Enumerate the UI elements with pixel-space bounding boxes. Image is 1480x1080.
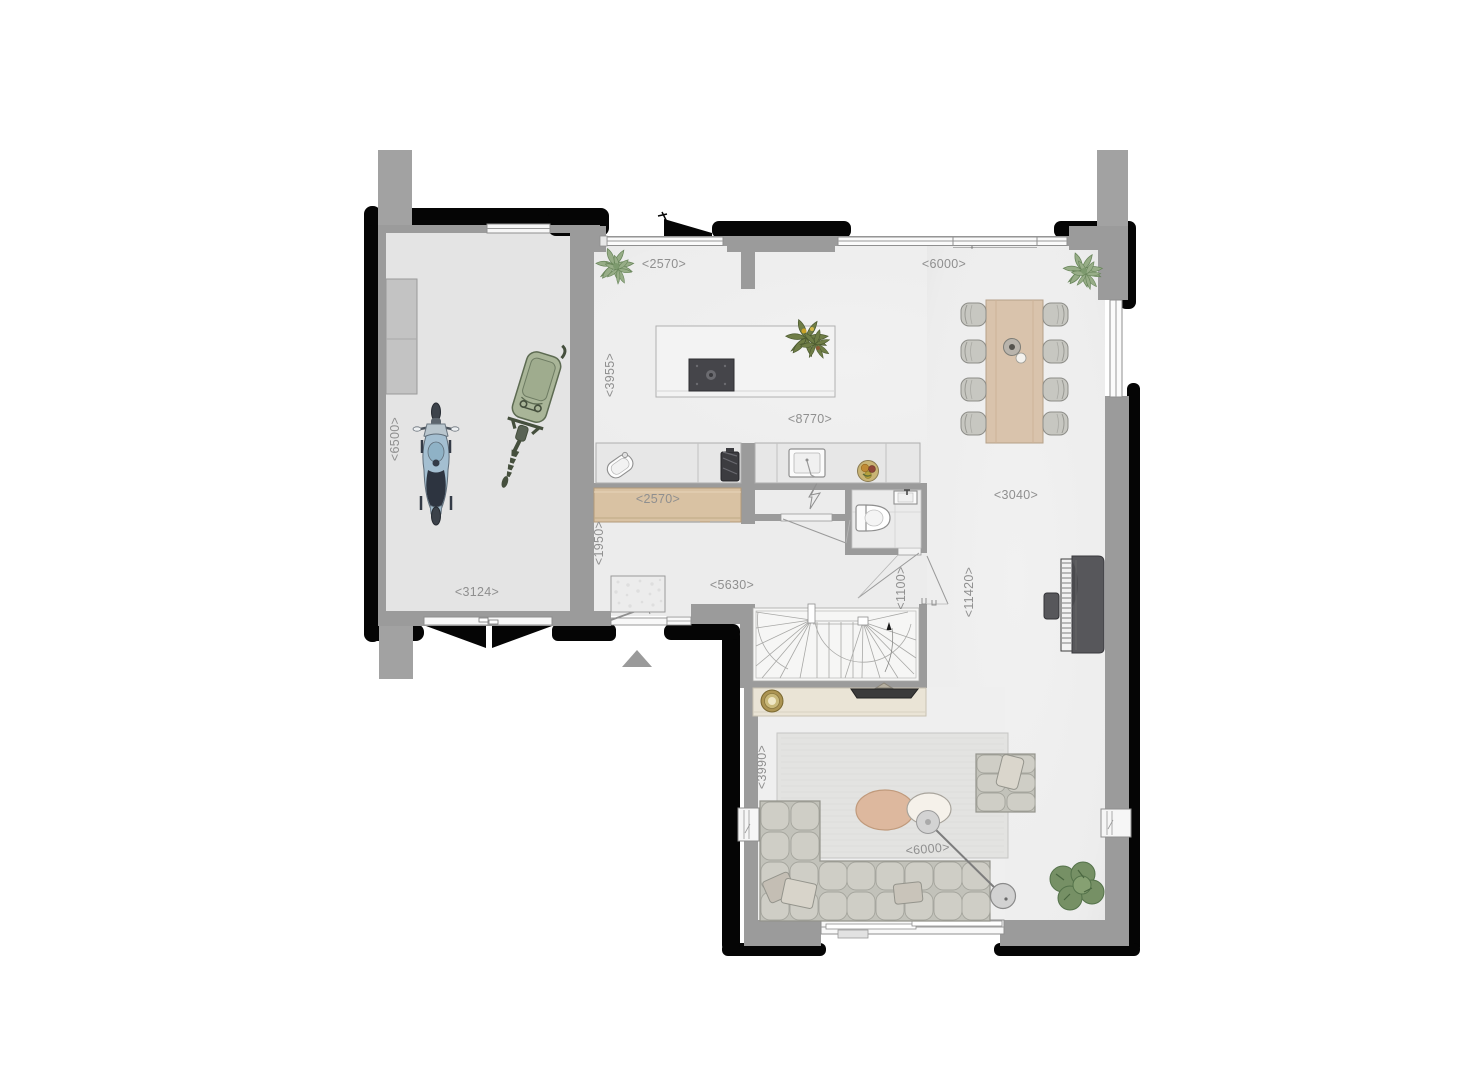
svg-text:<1100>: <1100> <box>894 566 908 609</box>
svg-text:<6000>: <6000> <box>922 257 966 271</box>
svg-text:<8770>: <8770> <box>788 412 832 426</box>
svg-text:<1950>: <1950> <box>592 521 606 565</box>
svg-text:<3955>: <3955> <box>603 353 617 397</box>
svg-text:<2570>: <2570> <box>636 492 680 506</box>
svg-text:<3040>: <3040> <box>994 488 1038 502</box>
svg-text:<6500>: <6500> <box>388 417 402 461</box>
svg-text:<11420>: <11420> <box>962 567 976 618</box>
svg-text:<3124>: <3124> <box>455 585 499 599</box>
svg-text:<3990>: <3990> <box>755 745 769 789</box>
svg-text:<5630>: <5630> <box>710 578 754 592</box>
svg-text:<2570>: <2570> <box>642 257 686 271</box>
